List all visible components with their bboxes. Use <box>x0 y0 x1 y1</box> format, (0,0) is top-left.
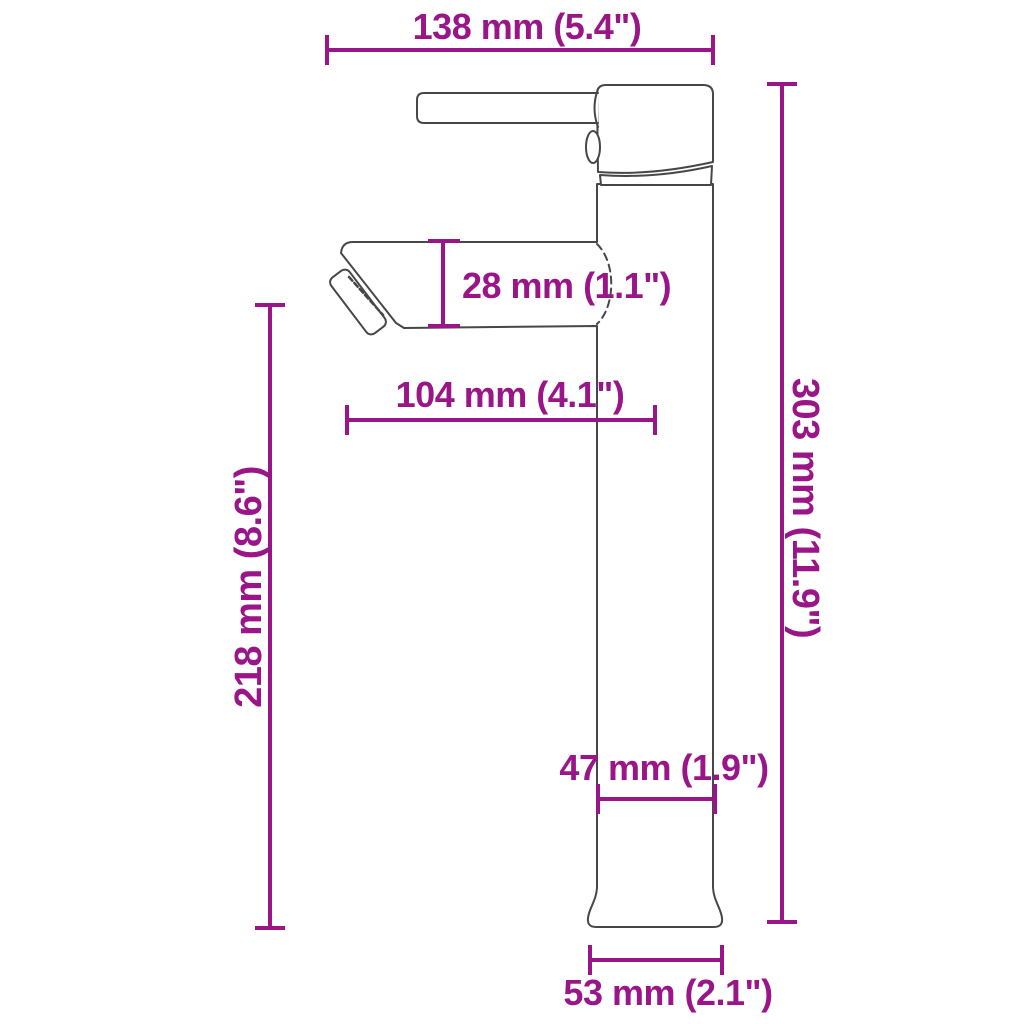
dim-label-spout-reach: 104 mm (4.1") <box>396 377 625 413</box>
faucet-handle-lever <box>417 93 598 123</box>
dim-label-body-width: 47 mm (1.9") <box>559 750 768 786</box>
dim-label-base-width: 53 mm (2.1") <box>563 975 772 1011</box>
faucet-cap <box>597 85 713 173</box>
dim-label-total-height: 303 mm (11.9") <box>786 378 824 638</box>
dim-label-clearance-height: 218 mm (8.6") <box>230 466 268 708</box>
dimension-lines <box>257 37 795 973</box>
dim-label-spout-height: 28 mm (1.1") <box>462 268 671 304</box>
faucet-dimension-drawing <box>0 0 1024 1024</box>
dim-line-base-width <box>590 947 722 973</box>
indicator-ellipse <box>586 131 600 163</box>
dim-label-total-width: 138 mm (5.4") <box>413 9 642 45</box>
diagram-canvas: 138 mm (5.4") 28 mm (1.1") 104 mm (4.1")… <box>0 0 1024 1024</box>
